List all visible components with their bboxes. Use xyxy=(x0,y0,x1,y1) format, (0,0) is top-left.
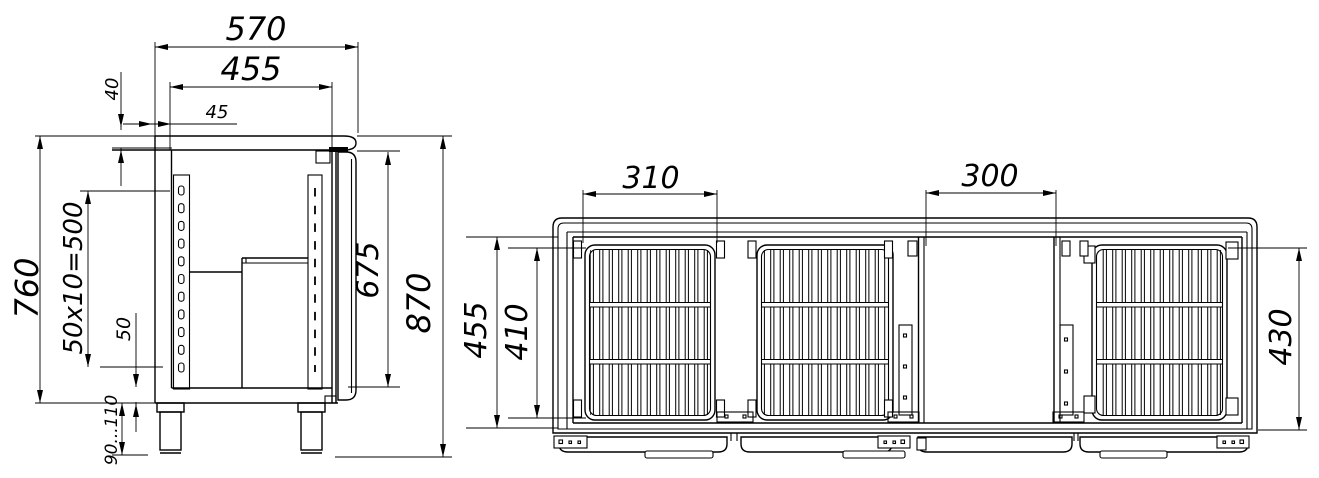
technical-drawing: 570 455 45 40 760 xyxy=(0,0,1319,478)
rear-wall xyxy=(155,136,172,403)
panel2-handle xyxy=(843,451,905,458)
dim-shelf-depth-label: 410 xyxy=(500,303,535,360)
door-panels xyxy=(554,433,1249,458)
dim-interior-depth-label: 455 xyxy=(220,50,281,88)
side-view-dimensions: 570 455 45 40 760 xyxy=(8,10,452,465)
base xyxy=(155,388,338,403)
evaporator-step xyxy=(190,258,308,388)
plan-view: 310 300 455 410 430 xyxy=(459,159,1307,458)
drawing-canvas: 570 455 45 40 760 xyxy=(0,0,1319,478)
legs xyxy=(157,403,325,453)
wire-shelf-2 xyxy=(757,245,893,420)
rack-slots xyxy=(179,186,185,372)
dim-overall-height-label: 870 xyxy=(400,272,438,333)
leg-front xyxy=(298,403,325,453)
hinge-strip-right xyxy=(1053,325,1084,422)
door-panel-2 xyxy=(741,437,892,452)
dim-overall-depth-label: 570 xyxy=(225,10,286,48)
dim-plan-interior-depth-label: 455 xyxy=(459,301,494,358)
wire-shelf-1 xyxy=(585,245,715,420)
front-wall xyxy=(332,152,336,403)
dim-door-height-label: 675 xyxy=(351,241,386,298)
dim-shelf-section-width-label: 310 xyxy=(622,161,679,196)
dim-machine-section-width-label: 300 xyxy=(961,159,1018,194)
side-view: 570 455 45 40 760 xyxy=(8,10,452,465)
shelf3-corner-bracket xyxy=(1084,396,1095,413)
door-panel-3 xyxy=(918,437,1072,452)
dim-leg-height-label: 90...110 xyxy=(102,395,122,465)
dim-rear-offset-label: 45 xyxy=(206,102,229,123)
panel-hinge-plates xyxy=(554,436,1249,450)
panel1-handle xyxy=(645,451,713,458)
dim-rail-pitch-label: 50x10=500 xyxy=(59,202,89,355)
dim-worktop-thickness-label: 40 xyxy=(102,78,123,101)
panel4-handle xyxy=(1100,451,1167,458)
leg-rear xyxy=(157,403,184,453)
base-step xyxy=(325,396,336,403)
shelf-rack-left xyxy=(174,175,190,389)
dim-body-height-label: 760 xyxy=(8,257,46,318)
shelf-rack-right xyxy=(308,175,322,389)
door-hinge-bracket xyxy=(316,151,330,163)
machine-compartment xyxy=(919,237,1061,423)
wire-shelf-3 xyxy=(1084,245,1227,420)
dim-base-height-label: 50 xyxy=(113,317,135,341)
dim-shelf-width-label: 430 xyxy=(1264,308,1299,365)
